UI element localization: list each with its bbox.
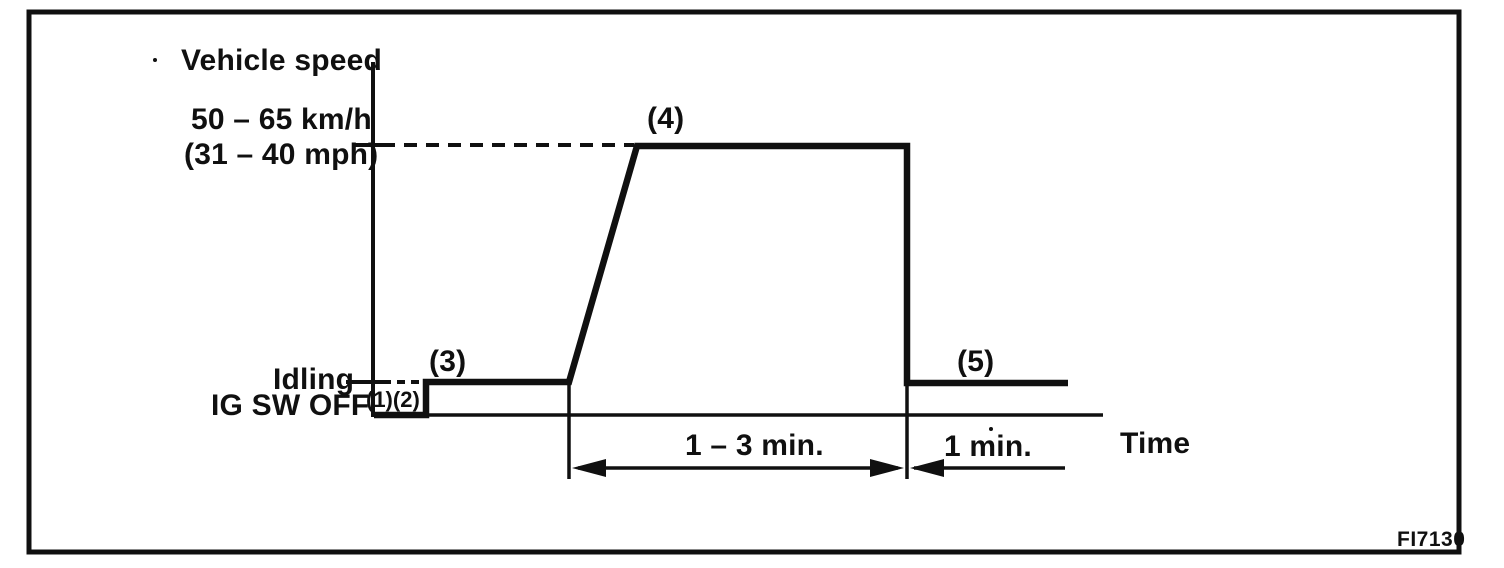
step-3-label: (3) <box>429 346 466 378</box>
figure-fi7130: Vehicle speed 50 – 65 km/h (31 – 40 mph)… <box>0 0 1504 568</box>
step-4-label: (4) <box>647 103 684 135</box>
step-5-label: (5) <box>957 346 994 378</box>
scan-artifact-dot <box>153 58 157 62</box>
arrowhead-left-icon <box>910 459 944 477</box>
frame-border <box>29 12 1459 552</box>
scan-artifact-dot <box>989 427 993 431</box>
speed-range-mph-label: (31 – 40 mph) <box>184 139 378 171</box>
figure-code: FI7130 <box>1397 529 1465 551</box>
step-1-2-label: (1)(2) <box>366 388 420 411</box>
cruise-duration-label: 1 – 3 min. <box>685 430 824 462</box>
arrowhead-right-icon <box>870 459 904 477</box>
arrowhead-left-icon <box>572 459 606 477</box>
x-axis-label: Time <box>1120 428 1190 460</box>
final-idle-duration-label: 1 min. <box>944 431 1032 463</box>
diagram-linework <box>0 0 1504 568</box>
ig-sw-off-level-label: IG SW OFF <box>211 390 369 422</box>
y-axis-label: Vehicle speed <box>181 45 382 77</box>
speed-range-kmh-label: 50 – 65 km/h <box>191 104 372 136</box>
